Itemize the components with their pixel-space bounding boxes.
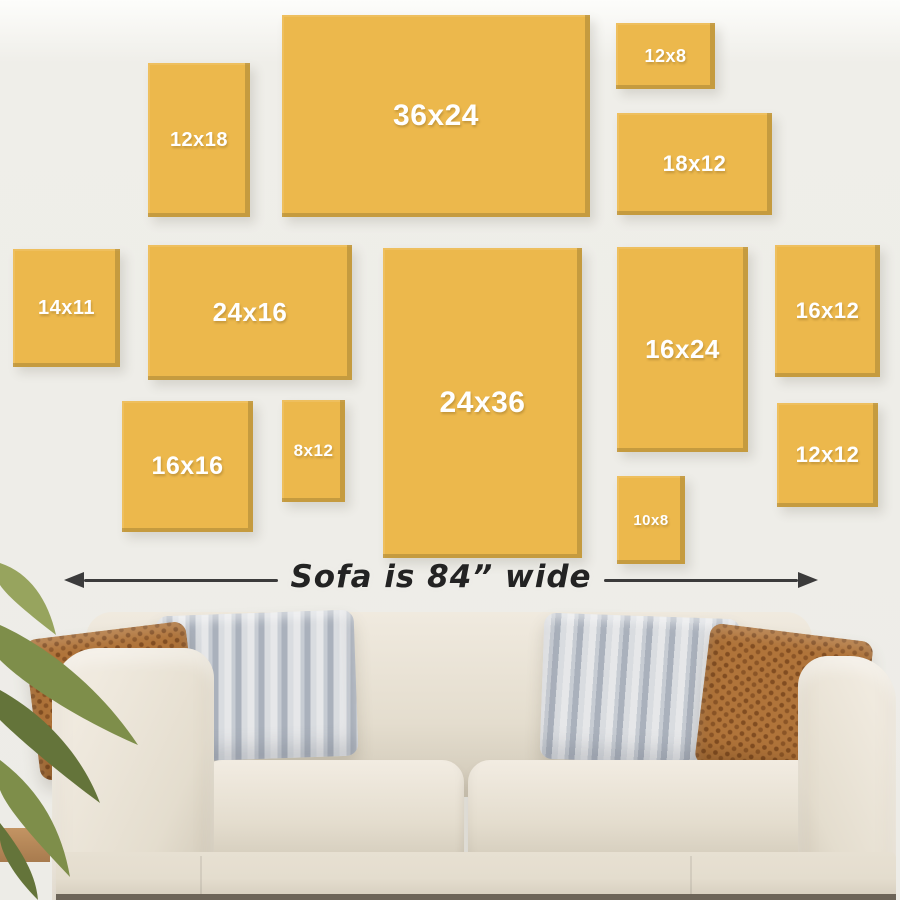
arrow-line-right [604, 579, 798, 582]
canvas-size-8x12: 8x12 [282, 400, 345, 502]
canvas-size-12x18: 12x18 [148, 63, 250, 217]
canvas-size-label: 24x16 [213, 297, 288, 328]
canvas-size-16x24: 16x24 [617, 247, 748, 452]
plant-icon [0, 555, 150, 900]
canvas-size-label: 12x12 [796, 442, 860, 468]
arrow-right-icon [798, 572, 818, 588]
canvas-size-label: 36x24 [393, 99, 479, 133]
canvas-size-label: 8x12 [294, 441, 334, 461]
canvas-size-label: 16x24 [645, 334, 720, 365]
canvas-size-36x24: 36x24 [282, 15, 590, 217]
canvas-size-label: 12x18 [170, 129, 228, 152]
sofa-width-note: Sofa is 84” wide [290, 559, 591, 595]
canvas-size-24x16: 24x16 [148, 245, 352, 380]
canvas-size-18x12: 18x12 [617, 113, 772, 215]
canvas-size-label: 16x16 [151, 452, 223, 481]
canvas-size-label: 18x12 [663, 151, 727, 177]
canvas-size-label: 10x8 [633, 512, 668, 529]
size-guide-scene: 12x1836x2412x818x1214x1124x1624x3616x241… [0, 0, 900, 900]
canvas-size-16x12: 16x12 [775, 245, 880, 377]
canvas-size-16x16: 16x16 [122, 401, 253, 532]
sofa-width-arrow: Sofa is 84” wide [64, 560, 818, 600]
canvas-size-14x11: 14x11 [13, 249, 120, 367]
canvas-size-24x36: 24x36 [383, 248, 582, 558]
canvas-size-label: 12x8 [644, 46, 686, 67]
canvas-size-label: 16x12 [796, 298, 860, 324]
canvas-size-12x8: 12x8 [616, 23, 715, 89]
canvas-size-12x12: 12x12 [777, 403, 878, 507]
canvas-size-label: 14x11 [38, 297, 95, 320]
canvas-size-10x8: 10x8 [617, 476, 685, 564]
canvas-size-label: 24x36 [440, 386, 526, 420]
